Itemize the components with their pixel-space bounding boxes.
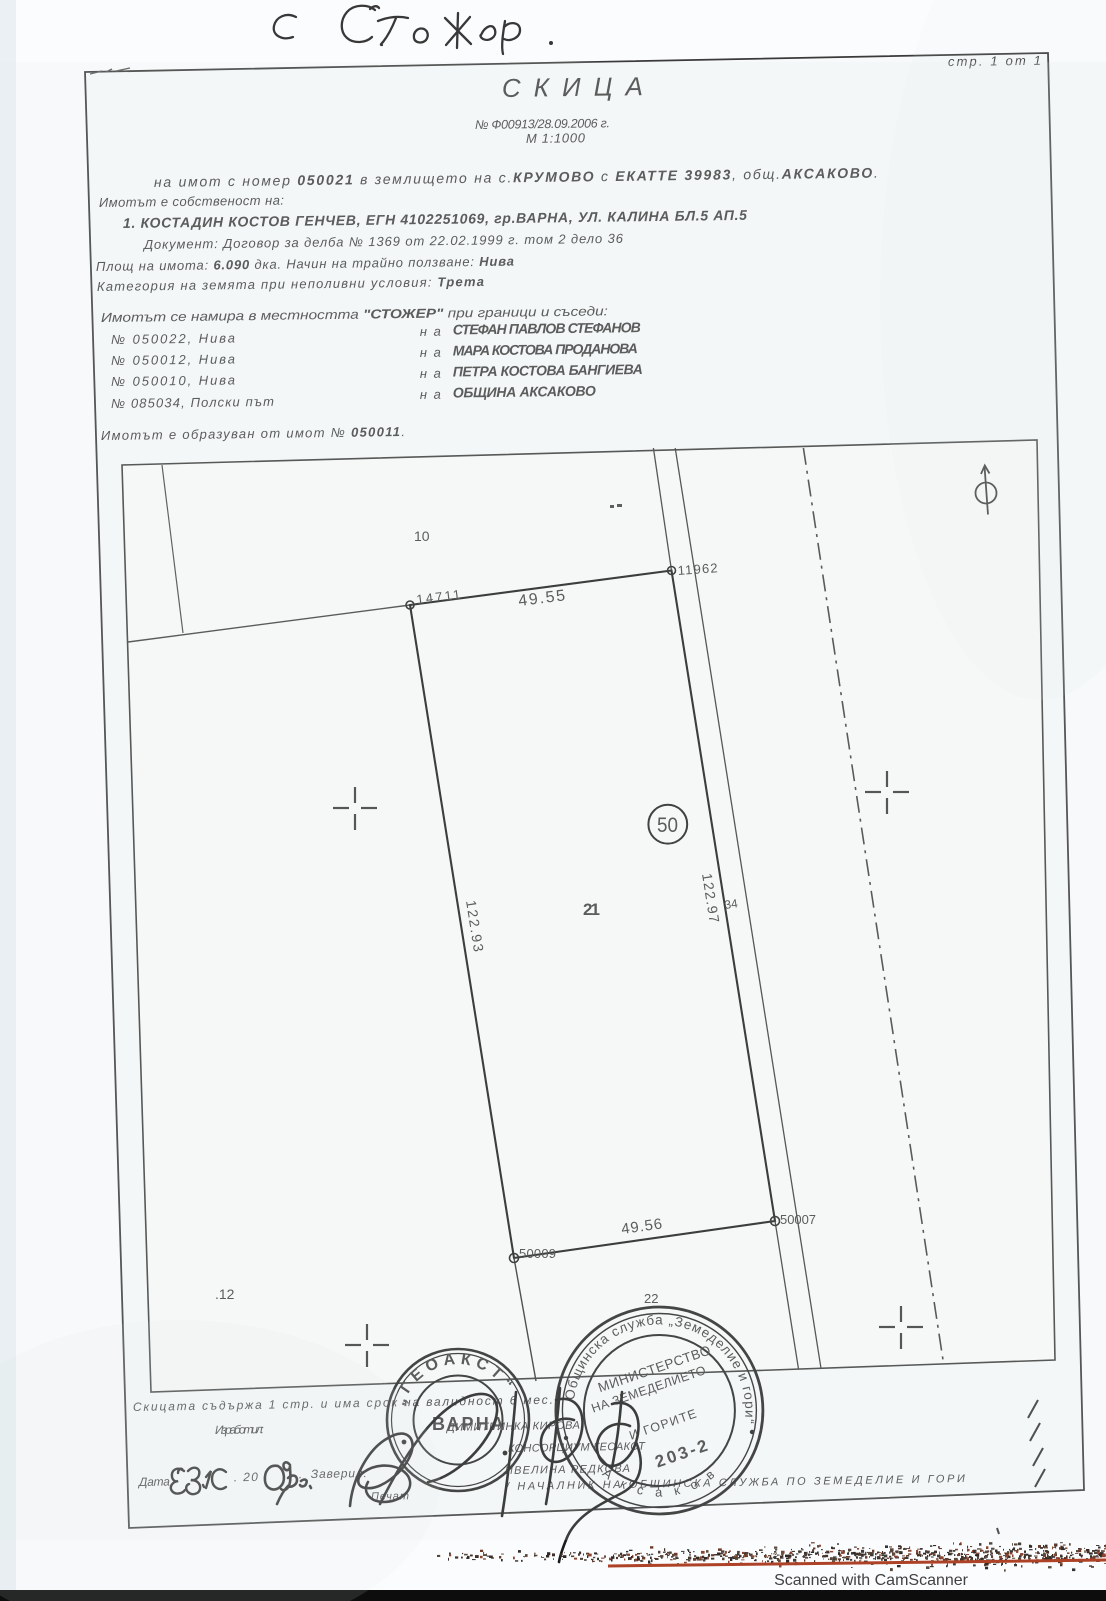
svg-text:№ 085034, Полски път: № 085034, Полски път [111,394,274,411]
svg-text:№ 050012, Нива: № 050012, Нива [111,351,235,368]
svg-text:М 1:1000: М 1:1000 [526,130,586,146]
svg-text:Дата: Дата [137,1474,171,1489]
svg-text:50009: 50009 [519,1246,556,1261]
svg-text:21: 21 [583,900,600,919]
svg-text:50007: 50007 [780,1212,816,1227]
svg-text:11962: 11962 [677,560,718,578]
svg-text:Scanned with CamScanner: Scanned with CamScanner [774,1572,969,1589]
svg-text:Изработил:: Изработил: [215,1422,264,1437]
svg-text:34: 34 [723,896,738,912]
svg-text:50: 50 [657,814,678,837]
svg-text:СТЕФАН ПАВЛОВ СТЕФАНОВ: СТЕФАН ПАВЛОВ СТЕФАНОВ [453,319,641,337]
svg-text:ПЕТРА КОСТОВА БАНГИЕВА: ПЕТРА КОСТОВА БАНГИЕВА [453,361,643,379]
svg-text:.12: .12 [215,1286,235,1302]
svg-text:Имотът е собственост на:: Имотът е собственост на: [99,193,285,210]
svg-text:№ Ф00913/28.09.2006 г.: № Ф00913/28.09.2006 г. [475,116,610,132]
svg-text:ОБЩИНА АКСАКОВО: ОБЩИНА АКСАКОВО [453,383,596,401]
svg-text:22: 22 [644,1291,658,1306]
svg-text:МАРА КОСТОВА ПРОДАНОВА: МАРА КОСТОВА ПРОДАНОВА [453,340,638,358]
svg-text:СКИЦА: СКИЦА [502,71,656,103]
svg-text:№ 050022, Нива: № 050022, Нива [111,330,235,347]
svg-text:10: 10 [414,528,430,544]
svg-text:№ 050010, Нива: № 050010, Нива [111,372,235,389]
